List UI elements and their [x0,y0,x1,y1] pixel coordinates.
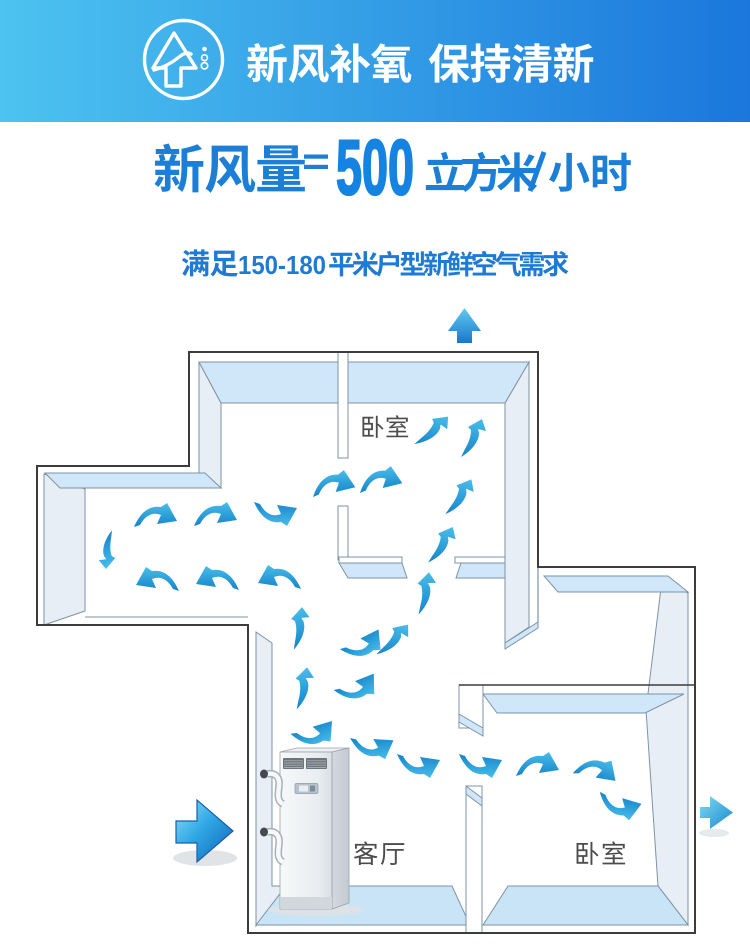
svg-text:150-180: 150-180 [238,250,326,280]
svg-text:500: 500 [336,124,414,211]
